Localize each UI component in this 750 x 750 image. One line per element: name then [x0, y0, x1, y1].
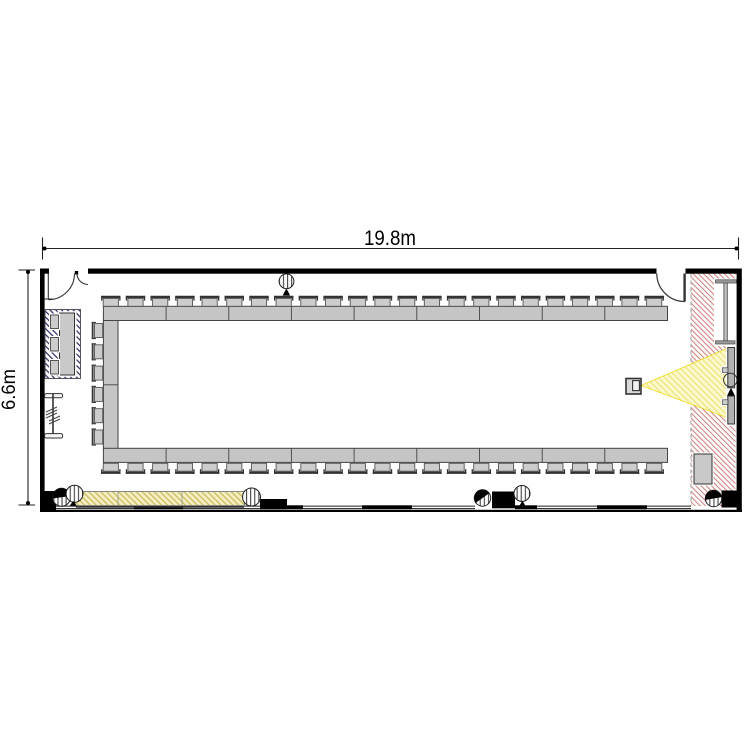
svg-text:6.6m: 6.6m: [0, 369, 20, 410]
svg-text:19.8m: 19.8m: [364, 227, 416, 250]
